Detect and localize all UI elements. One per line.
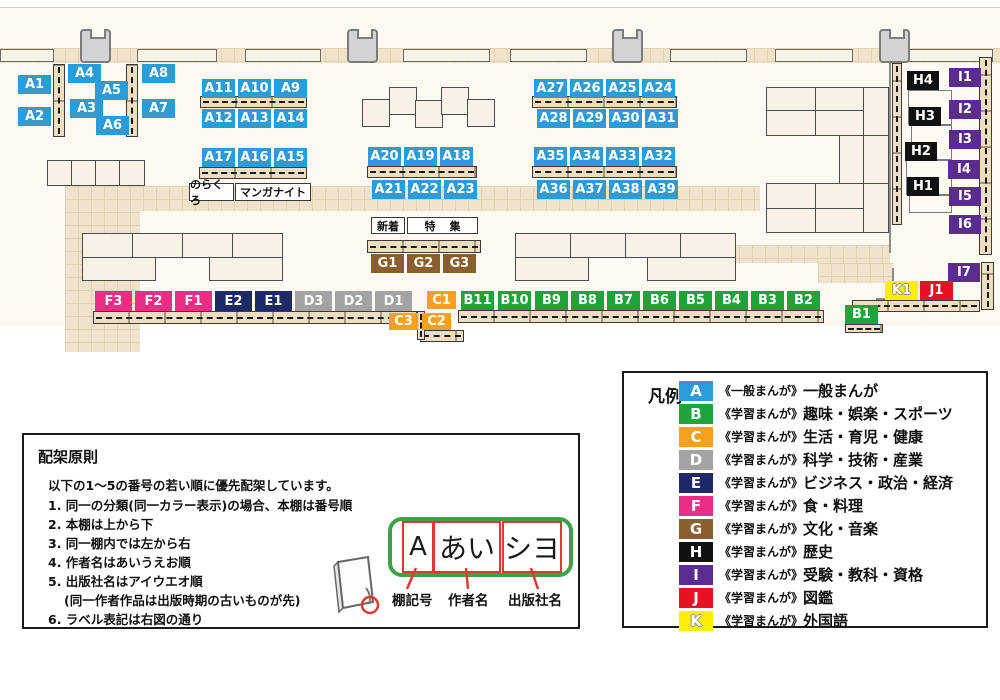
shelf-label-G3: G3 [443,254,476,273]
furniture-table [515,233,571,258]
furniture-table [815,208,864,233]
furniture-table [119,160,145,186]
legend-chip-E: E [679,473,713,493]
principle-item: 4. 作者名はあいうえお順 [48,553,352,572]
principles-list: 1. 同一の分類(同一カラー表示)の場合、本棚は番号順2. 本棚は上から下3. … [48,496,352,629]
shelf-label-A8: A8 [142,64,175,83]
shelf-label-A35: A35 [534,147,567,166]
shelf-label-A14: A14 [274,109,307,128]
pillar [612,29,643,63]
furniture-table [815,183,864,209]
shelf-label-A27: A27 [534,79,567,98]
legend-category: 文化・音楽 [803,518,878,539]
shelf-label-I5: I5 [949,187,981,206]
shelf-label-A18: A18 [440,147,473,166]
shelf-label-A33: A33 [606,147,639,166]
shelf-label-A28: A28 [537,109,570,128]
legend-row-H: H《学習まんが》歴史 [679,540,953,563]
legend-row-D: D《学習まんが》科学・技術・産業 [679,448,953,471]
shelf-label-C2: C2 [422,313,451,330]
shelf-label-E2: E2 [215,291,252,311]
legend-row-I: I《学習まんが》受験・教科・資格 [679,563,953,586]
shelf-label-H4: H4 [907,71,939,90]
furniture-table [467,99,495,127]
legend-row-G: G《学習まんが》文化・音楽 [679,517,953,540]
shelf-label-B7: B7 [607,291,640,310]
map-note-norakuro: のらくろ [189,183,234,201]
wall-window [245,49,321,62]
shelf-label-D1: D1 [375,291,412,311]
map-note-manga-night: マンガナイト [235,183,311,201]
wall-window [137,49,217,62]
shelf-label-E1: E1 [255,291,292,311]
shelf-label-A34: A34 [570,147,603,166]
shelf-label-B10: B10 [498,291,531,310]
furniture-table [441,87,469,115]
wall-line [889,63,891,253]
legend-type: 《学習まんが》 [719,543,803,560]
shelf-label-A13: A13 [238,109,271,128]
legend-type: 《一般まんが》 [719,382,803,399]
legend-type: 《学習まんが》 [719,566,803,583]
carpet-aisle [818,263,893,283]
shelf-label-B4: B4 [715,291,748,310]
legend-category: 趣味・娯楽・スポーツ [803,403,953,424]
shelf-label-F1: F1 [175,291,212,311]
caption-publisher: 出版社名 [508,589,562,609]
furniture-table [766,110,816,136]
shelf-label-B3: B3 [751,291,784,310]
bookshelf [892,63,902,225]
legend-type: 《学習まんが》 [719,474,803,491]
shelf-label-K1: K1 [885,281,918,300]
caption-author: 作者名 [448,589,489,609]
furniture-table [570,233,626,258]
shelf-label-I7: I7 [948,263,980,282]
shelf-label-D2: D2 [335,291,372,311]
shelf-label-B6: B6 [643,291,676,310]
furniture-table [209,257,283,281]
shelf-label-B8: B8 [571,291,604,310]
legend-chip-G: G [679,519,713,539]
principles-title: 配架原則 [38,446,98,467]
shelf-label-I4: I4 [948,160,980,179]
shelf-label-B2: B2 [787,291,820,310]
legend-type: 《学習まんが》 [719,451,803,468]
shelf-label-A9: A9 [274,79,307,98]
bookshelf [367,166,477,178]
legend-type: 《学習まんが》 [719,612,803,629]
pillar [347,29,378,63]
shelf-label-A25: A25 [606,79,639,98]
legend-row-K: K《学習まんが》外国語 [679,609,953,632]
shelf-label-A39: A39 [645,180,678,199]
shelf-label-A12: A12 [202,109,235,128]
wall-window [510,49,587,62]
legend-category: 一般まんが [803,380,878,401]
map-note-tokushu: 特集 [407,217,478,234]
shelf-label-A6: A6 [96,116,129,135]
shelf-label-H3: H3 [909,107,941,126]
legend-category: 歴史 [803,541,833,562]
book-icon [322,548,386,620]
bookshelf [367,240,481,253]
shelf-label-F3: F3 [95,291,132,311]
pillar [80,29,111,63]
furniture-table [766,87,816,111]
shelf-label-A1: A1 [18,75,51,94]
wall-window [403,49,490,62]
legend-row-A: A《一般まんが》一般まんが [679,379,953,402]
shelf-label-A23: A23 [444,180,477,199]
wall-window [0,49,54,62]
map-note-shinchaku: 新着 [371,217,405,234]
pillar-notch [622,29,638,39]
legend-chip-B: B [679,404,713,424]
shelf-label-H2: H2 [905,142,937,161]
legend-category: ビジネス・政治・経済 [803,472,953,493]
bookshelf [93,311,417,324]
legend-panel: 凡例 A《一般まんが》一般まんがB《学習まんが》趣味・娯楽・スポーツC《学習まん… [622,371,988,628]
legend-row-E: E《学習まんが》ビジネス・政治・経済 [679,471,953,494]
principles-intro: 以下の1〜5の番号の若い順に優先配架しています。 [48,475,339,494]
legend-category: 生活・育児・健康 [803,426,923,447]
furniture-table [95,160,120,186]
furniture-table [415,100,443,128]
furniture-table [47,160,72,186]
shelf-label-A15: A15 [274,148,307,167]
shelf-label-B9: B9 [535,291,568,310]
wall-window [775,49,853,62]
furniture-table [863,183,889,233]
furniture-table [863,87,889,136]
furniture-table [863,135,889,184]
legend-chip-C: C [679,427,713,447]
furniture-table [182,233,233,258]
shelf-label-C3: C3 [389,313,418,330]
furniture-table [766,183,816,209]
furniture-table [132,233,183,258]
legend-category: 科学・技術・産業 [803,449,923,470]
bookshelf [458,310,824,323]
shelf-label-I2: I2 [949,100,981,119]
legend-category: 外国語 [803,610,848,631]
shelf-label-A5: A5 [95,81,128,100]
legend-type: 《学習まんが》 [719,520,803,537]
shelf-label-A20: A20 [368,147,401,166]
shelf-label-I3: I3 [949,130,981,149]
principle-item: 1. 同一の分類(同一カラー表示)の場合、本棚は番号順 [48,496,352,515]
legend-row-F: F《学習まんが》食・料理 [679,494,953,517]
bookshelf [420,330,464,342]
furniture-table [647,257,736,281]
legend-title: 凡例 [648,382,682,407]
principle-item: 6. ラベル表記は右図の通り [48,610,352,629]
shelf-label-B11: B11 [461,291,494,310]
shelf-label-A2: A2 [18,107,51,126]
furniture-table [389,87,417,115]
furniture-table [815,87,864,111]
shelf-label-A11: A11 [202,79,235,98]
shelf-label-A22: A22 [408,180,441,199]
legend-chip-K: K [679,611,713,631]
furniture-table [815,110,864,136]
furniture-table [82,233,133,258]
shelf-label-A16: A16 [238,148,271,167]
furniture-table [232,233,283,258]
bookshelf [532,166,677,178]
furniture-table [82,257,156,281]
legend-type: 《学習まんが》 [719,497,803,514]
shelf-label-A31: A31 [645,109,678,128]
shelf-label-A30: A30 [609,109,642,128]
legend-chip-D: D [679,450,713,470]
shelf-label-A21: A21 [372,180,405,199]
furniture-table [71,160,96,186]
shelf-label-A19: A19 [404,147,437,166]
principle-item: 2. 本棚は上から下 [48,515,352,534]
wall-top-line [0,7,1000,8]
shelf-label-C1: C1 [427,291,456,309]
shelf-label-J1: J1 [920,281,953,300]
legend-chip-I: I [679,565,713,585]
legend-category: 受験・教科・資格 [803,564,923,585]
furniture-table [362,99,390,127]
shelf-label-A10: A10 [238,79,271,98]
legend-chip-F: F [679,496,713,516]
furniture-table [680,233,736,258]
caption-shelf-code: 棚記号 [392,589,433,609]
pillar-notch [357,29,373,39]
shelf-label-F2: F2 [135,291,172,311]
shelf-label-A38: A38 [609,180,642,199]
legend-chip-A: A [679,381,713,401]
shelf-label-A29: A29 [573,109,606,128]
bookshelf [845,324,883,333]
principle-item: 5. 出版社名はアイウエオ順 [48,572,352,591]
furniture-table [766,208,816,233]
principle-item: 3. 同一棚内では左から右 [48,534,352,553]
shelf-label-G2: G2 [407,254,440,273]
legend-rows: A《一般まんが》一般まんがB《学習まんが》趣味・娯楽・スポーツC《学習まんが》生… [679,379,953,632]
shelf-label-A26: A26 [570,79,603,98]
pillar [879,29,910,63]
pillar-notch [90,29,106,39]
pillar-notch [889,29,905,39]
legend-type: 《学習まんが》 [719,428,803,445]
desk-outline [909,195,952,213]
shelf-label-A37: A37 [573,180,606,199]
wall-window [670,49,747,62]
legend-chip-J: J [679,588,713,608]
shelf-label-G1: G1 [371,254,404,273]
legend-category: 図鑑 [803,587,833,608]
shelf-label-B1: B1 [845,305,878,324]
shelf-label-H1: H1 [907,177,939,196]
legend-type: 《学習まんが》 [719,589,803,606]
legend-row-J: J《学習まんが》図鑑 [679,586,953,609]
legend-category: 食・料理 [803,495,863,516]
legend-chip-H: H [679,542,713,562]
shelf-label-A32: A32 [642,147,675,166]
bookshelf [981,262,994,310]
shelf-label-I1: I1 [949,68,981,87]
shelf-label-A36: A36 [537,180,570,199]
shelf-label-B5: B5 [679,291,712,310]
shelf-label-A7: A7 [142,99,175,118]
furniture-table [515,257,589,281]
shelf-label-A24: A24 [642,79,675,98]
principle-item: (同一作者作品は出版時期の古いものが先) [48,591,352,610]
legend-row-C: C《学習まんが》生活・育児・健康 [679,425,953,448]
library-floor-map-page: A1A2A4A5A3A6A8A7A11A10A9A12A13A14A17A16A… [0,0,1000,700]
shelf-label-I6: I6 [949,215,981,234]
shelf-label-A17: A17 [202,148,235,167]
bookshelf [53,64,65,137]
legend-type: 《学習まんが》 [719,405,803,422]
shelf-label-D3: D3 [295,291,332,311]
furniture-table [839,135,864,184]
legend-row-B: B《学習まんが》趣味・娯楽・スポーツ [679,402,953,425]
furniture-table [625,233,681,258]
